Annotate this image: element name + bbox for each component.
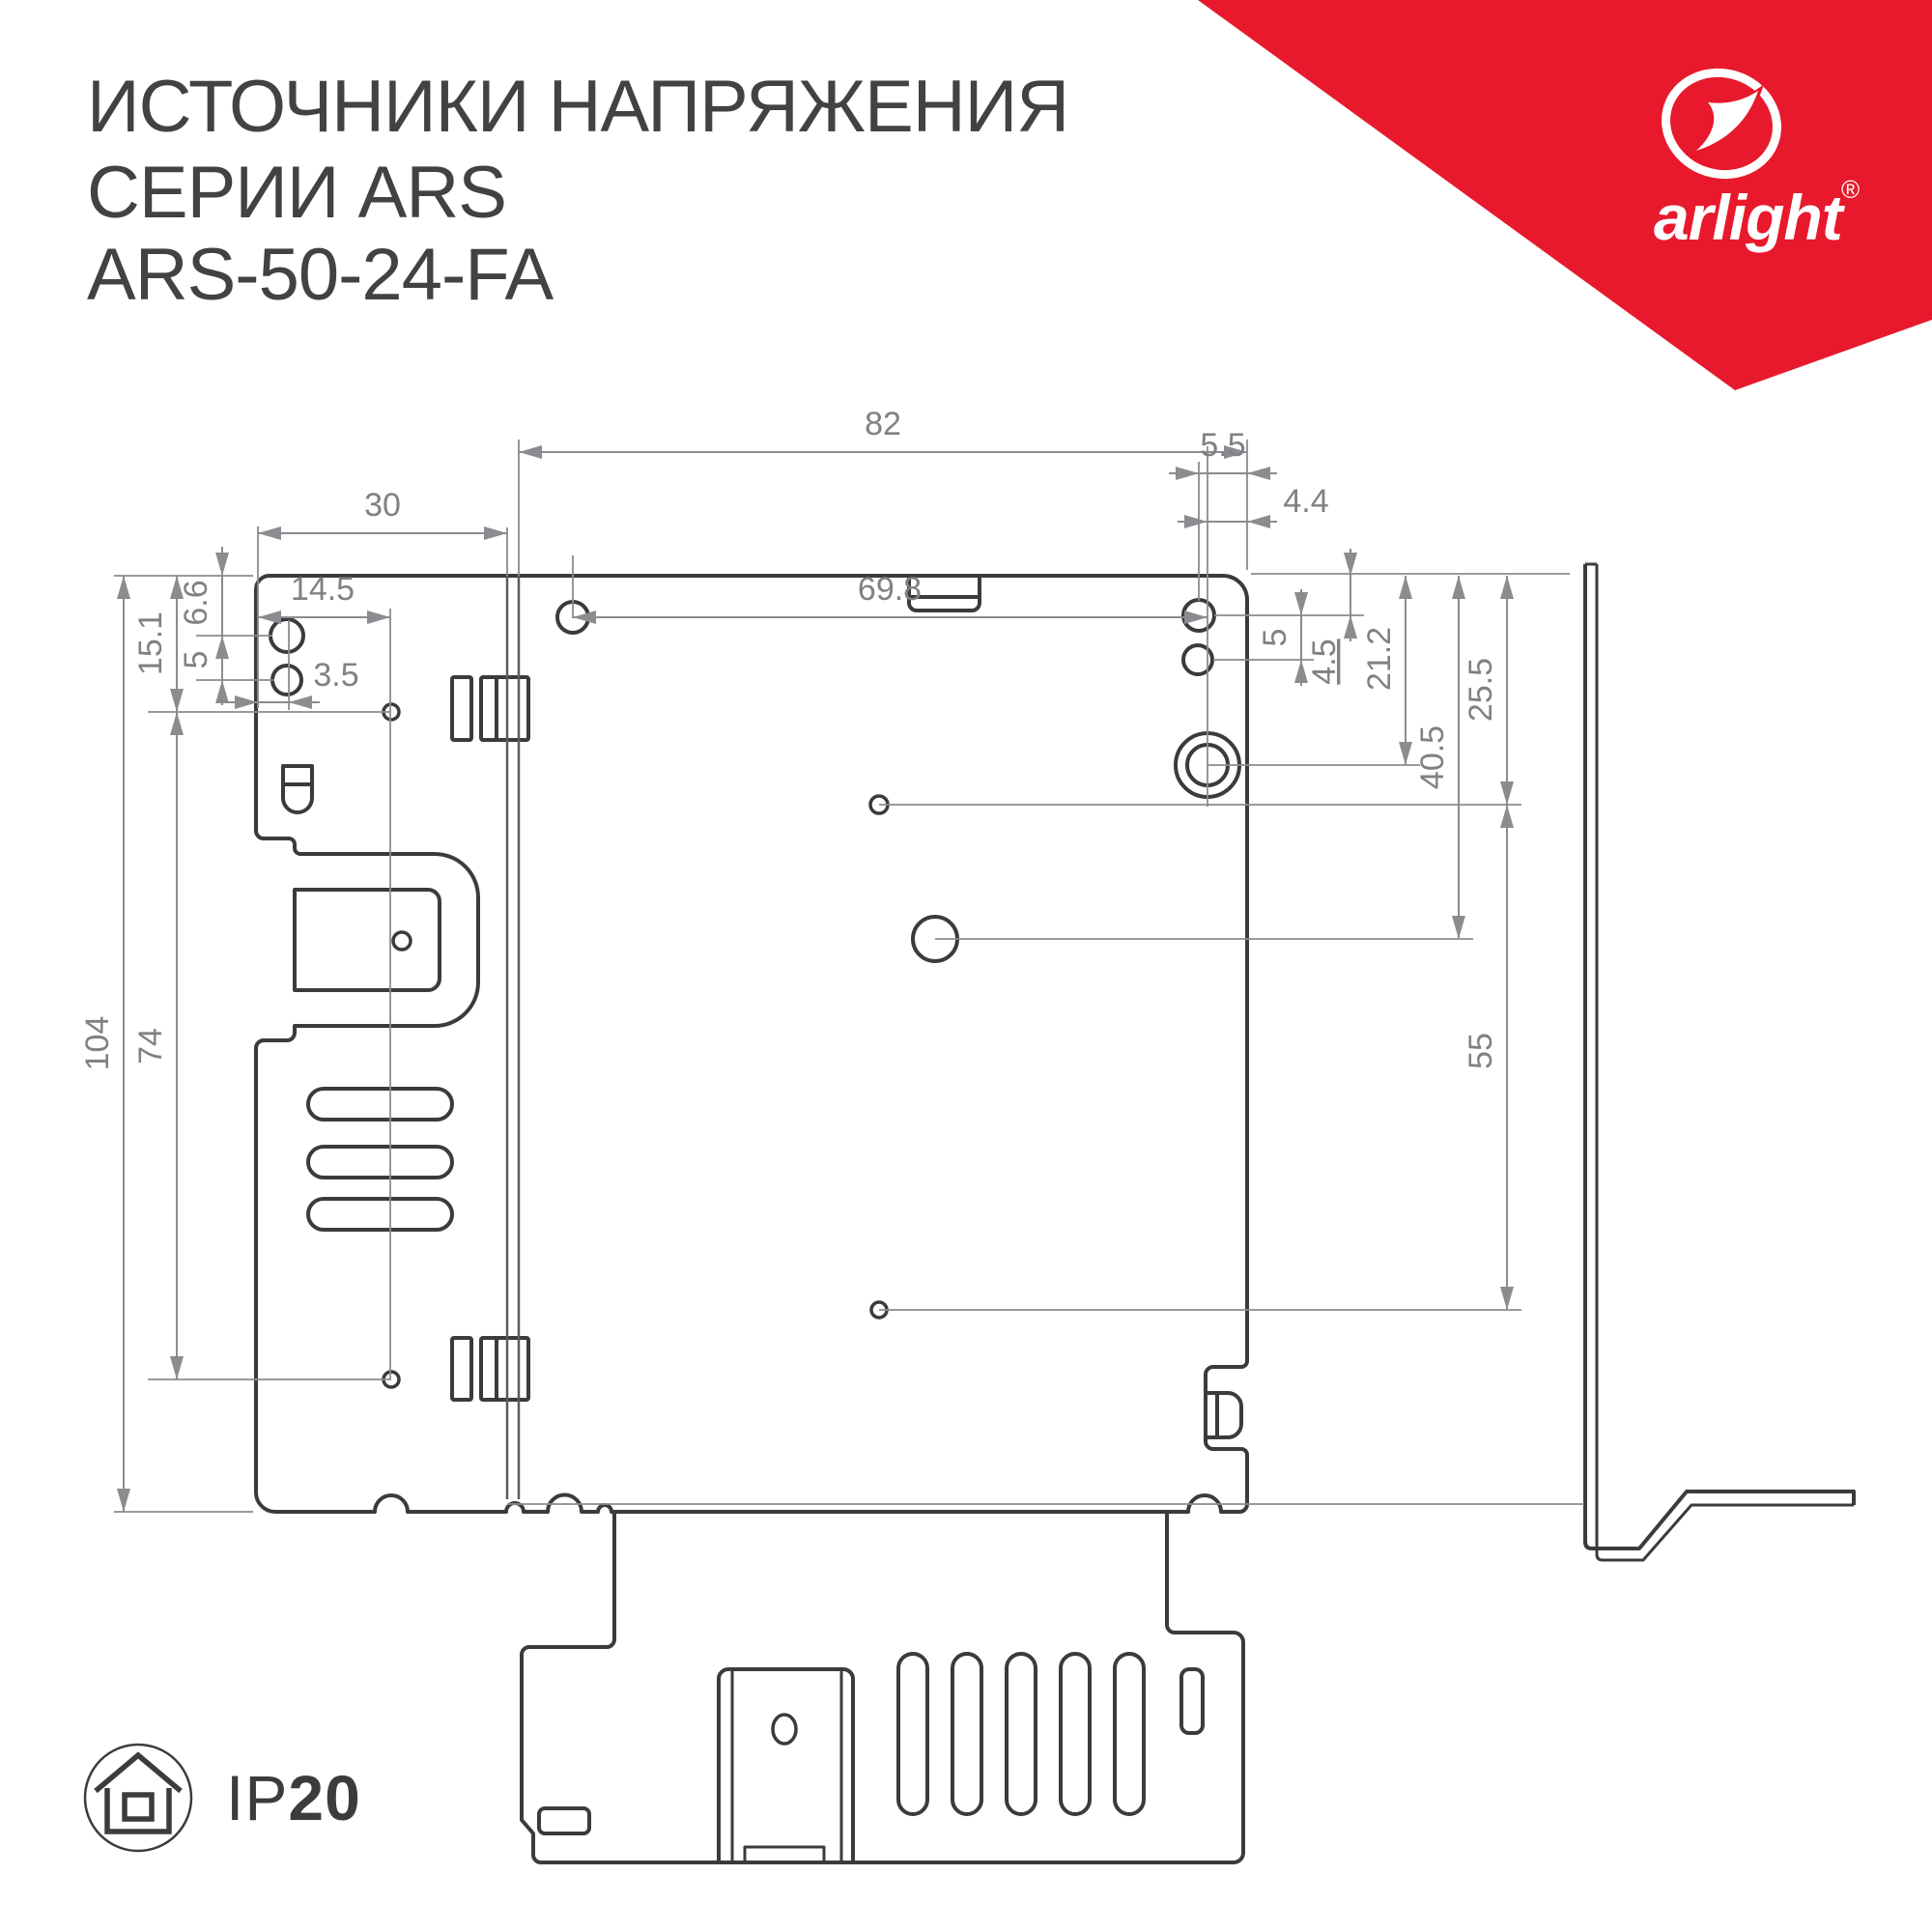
dim-label: 5.5: [1200, 427, 1245, 464]
dim-label: 74: [132, 1028, 169, 1065]
din-clip-hole: [773, 1715, 796, 1744]
mounting-hole: [270, 619, 303, 652]
dim-4-5: 4.5: [1306, 549, 1357, 685]
ip-prefix: IP: [226, 1762, 288, 1833]
dim-69-8: 69.8: [573, 571, 1207, 624]
vent-slot: [308, 1199, 452, 1230]
side-clip-tab: [1206, 1393, 1241, 1437]
title-block: ИСТОЧНИКИ НАПРЯЖЕНИЯ СЕРИИ ARS ARS-50-24…: [87, 66, 1068, 316]
bottom-slot: [539, 1808, 589, 1833]
ip-value: 20: [288, 1762, 360, 1833]
terminal-slot: [452, 1338, 471, 1400]
house-window: [125, 1795, 152, 1819]
dim-label: 3.5: [313, 657, 358, 694]
ip-rating: IP20: [226, 1762, 361, 1833]
dim-21-2: 21.2: [1361, 576, 1412, 765]
dim-label: 14.5: [291, 571, 355, 608]
connector-pin-hole: [393, 932, 411, 950]
dim-5-5: 5.5: [1169, 427, 1277, 480]
dim-label: 69.8: [858, 571, 922, 608]
dim-104: 104: [79, 576, 130, 1512]
led-indicator: [283, 766, 312, 812]
dim-14-5: 14.5: [258, 571, 390, 624]
house-roof: [96, 1755, 181, 1791]
page: ИСТОЧНИКИ НАПРЯЖЕНИЯ СЕРИИ ARS ARS-50-24…: [0, 0, 1932, 1932]
ip-badge-circle: [85, 1745, 191, 1851]
page-title-line2: СЕРИИ ARS: [87, 152, 506, 234]
dim-label: 15.1: [132, 611, 169, 675]
dim-4-4: 4.4: [1178, 483, 1329, 528]
dim-label: 82: [865, 406, 901, 442]
cover-edge-lines: [507, 576, 519, 1499]
bottom-view: [522, 1514, 1243, 1862]
dim-5-right: 5: [1257, 589, 1308, 686]
dim-40-5: 40.5: [1414, 576, 1465, 939]
bottom-outline: [522, 1514, 1243, 1862]
dim-3-5: 3.5: [227, 657, 359, 709]
bottom-slot: [1181, 1669, 1203, 1733]
terminal-slot: [481, 1338, 528, 1400]
vent-slot: [1061, 1654, 1090, 1814]
side-profile-inner: [1597, 564, 1854, 1560]
front-view: [256, 576, 1247, 1512]
chassis-outline: [256, 576, 1247, 1512]
vent-slot: [308, 1147, 452, 1178]
dim-6-6: 6.6: [178, 547, 229, 665]
vent-slot: [952, 1654, 981, 1814]
vent-slot: [898, 1654, 927, 1814]
dim-label: 30: [364, 487, 401, 524]
dim-82: 82: [519, 406, 1247, 459]
dim-15-1: 15.1: [132, 576, 184, 712]
brand-registered-mark: ®: [1841, 175, 1860, 204]
dim-label: 5: [178, 651, 214, 669]
brand-corner: arlight ®: [1198, 0, 1932, 390]
dim-label: 6.6: [178, 580, 214, 625]
vent-slot: [1115, 1654, 1144, 1814]
dim-label: 104: [79, 1016, 116, 1071]
dim-label: 55: [1463, 1033, 1499, 1069]
page-title-line1: ИСТОЧНИКИ НАПРЯЖЕНИЯ: [87, 66, 1068, 148]
din-clip-outer: [719, 1669, 853, 1862]
ip-badge: IP20: [85, 1745, 361, 1851]
mounting-hole: [272, 666, 301, 695]
din-clip-notch: [745, 1847, 824, 1862]
vent-slot: [1007, 1654, 1036, 1814]
side-view: [1585, 564, 1854, 1560]
dim-74: 74: [132, 712, 184, 1379]
dim-label: 4.4: [1283, 483, 1328, 520]
dim-label: 21.2: [1361, 627, 1398, 691]
page-title-line3: ARS-50-24-FA: [87, 234, 554, 316]
dim-label: 40.5: [1414, 725, 1451, 789]
dim-30: 30: [258, 487, 507, 540]
vent-slot: [308, 1089, 452, 1120]
terminal-slot: [452, 677, 471, 740]
dim-55: 55: [1463, 805, 1514, 1310]
house-icon: [96, 1755, 181, 1832]
drawing-canvas: ИСТОЧНИКИ НАПРЯЖЕНИЯ СЕРИИ ARS ARS-50-24…: [0, 0, 1932, 1932]
terminal-slot: [481, 677, 528, 740]
side-profile-outer: [1585, 564, 1854, 1548]
dim-25-5: 25.5: [1463, 576, 1514, 805]
dim-label: 25.5: [1463, 658, 1499, 722]
brand-logo-text: arlight: [1654, 182, 1846, 253]
dim-label: 4.5: [1306, 639, 1343, 684]
dim-label: 5: [1257, 629, 1293, 647]
connector-opening: [295, 890, 440, 990]
